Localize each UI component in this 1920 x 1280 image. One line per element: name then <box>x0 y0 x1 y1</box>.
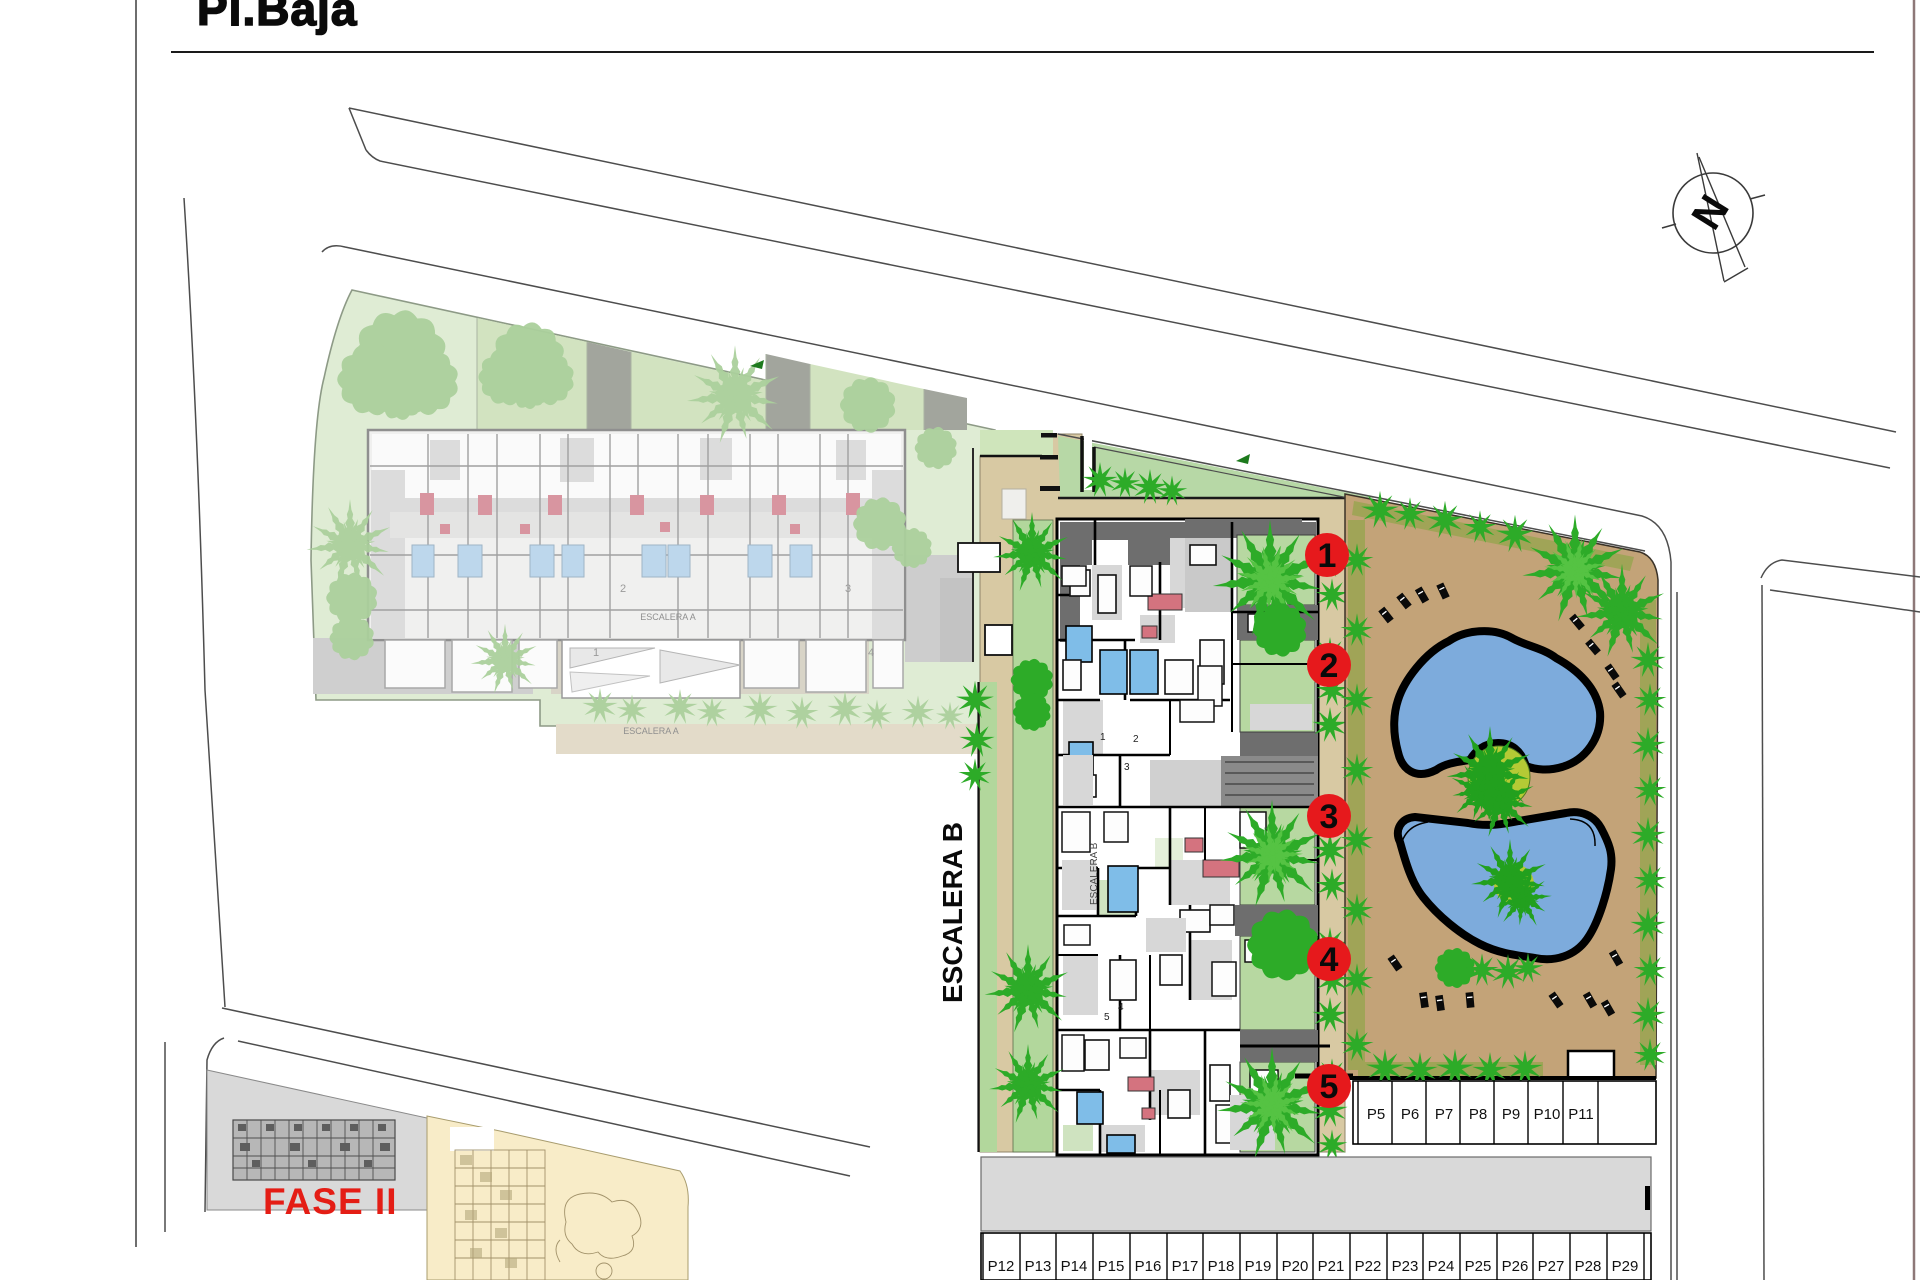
svg-text:P9: P9 <box>1502 1106 1520 1123</box>
svg-text:P19: P19 <box>1245 1258 1272 1275</box>
svg-text:P26: P26 <box>1502 1258 1529 1275</box>
svg-text:3: 3 <box>1124 762 1130 773</box>
svg-text:P7: P7 <box>1435 1106 1453 1123</box>
svg-text:P29: P29 <box>1612 1258 1639 1275</box>
svg-text:P23: P23 <box>1392 1258 1419 1275</box>
svg-text:1: 1 <box>1100 732 1106 743</box>
svg-text:P25: P25 <box>1465 1258 1492 1275</box>
svg-text:P24: P24 <box>1428 1258 1455 1275</box>
svg-text:ESCALERA B: ESCALERA B <box>1089 842 1100 905</box>
svg-text:P17: P17 <box>1172 1258 1199 1275</box>
svg-text:ESCALERA B: ESCALERA B <box>937 822 968 1003</box>
svg-text:Pl.Baja: Pl.Baja <box>197 0 357 35</box>
svg-text:ESCALERA A: ESCALERA A <box>640 612 696 622</box>
svg-text:P28: P28 <box>1575 1258 1602 1275</box>
svg-text:P22: P22 <box>1355 1258 1382 1275</box>
svg-text:FASE II: FASE II <box>263 1181 397 1222</box>
svg-text:3: 3 <box>1320 798 1339 836</box>
svg-text:P13: P13 <box>1025 1258 1052 1275</box>
svg-text:5: 5 <box>1104 1012 1110 1023</box>
svg-text:P12: P12 <box>988 1258 1015 1275</box>
svg-text:P16: P16 <box>1135 1258 1162 1275</box>
svg-text:4: 4 <box>1320 941 1339 979</box>
svg-text:3: 3 <box>845 583 851 595</box>
svg-text:2: 2 <box>620 583 626 595</box>
svg-text:P6: P6 <box>1401 1106 1419 1123</box>
svg-text:P21: P21 <box>1318 1258 1345 1275</box>
svg-text:P10: P10 <box>1534 1106 1561 1123</box>
svg-text:P14: P14 <box>1061 1258 1088 1275</box>
svg-text:P5: P5 <box>1367 1106 1385 1123</box>
svg-text:P27: P27 <box>1538 1258 1565 1275</box>
svg-text:4: 4 <box>868 647 874 659</box>
svg-text:1: 1 <box>593 647 599 659</box>
svg-text:2: 2 <box>1320 647 1339 685</box>
svg-text:1: 1 <box>1318 537 1337 575</box>
svg-text:ESCALERA A: ESCALERA A <box>623 726 679 736</box>
svg-text:P15: P15 <box>1098 1258 1125 1275</box>
svg-text:P11: P11 <box>1568 1106 1594 1123</box>
svg-text:2: 2 <box>1133 734 1139 745</box>
svg-text:P18: P18 <box>1208 1258 1235 1275</box>
svg-text:5: 5 <box>1320 1068 1339 1106</box>
svg-text:P20: P20 <box>1282 1258 1309 1275</box>
svg-text:4: 4 <box>1118 1002 1124 1013</box>
svg-text:P8: P8 <box>1469 1106 1487 1123</box>
